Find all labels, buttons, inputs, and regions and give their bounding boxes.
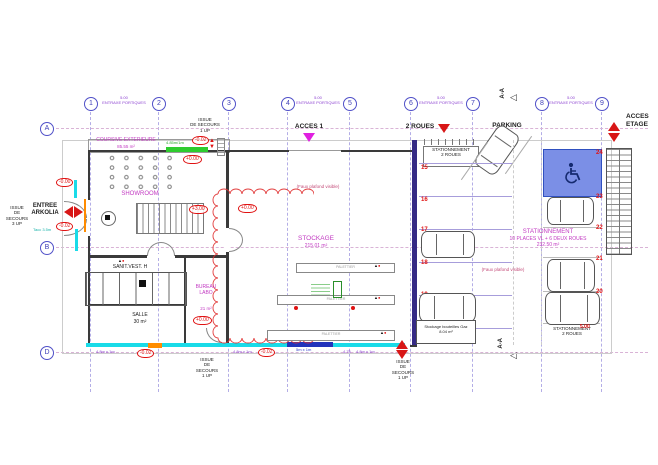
green-annotation-lines — [311, 284, 330, 295]
grid-column-bubble: 1 — [84, 97, 98, 111]
bottom-dimension: 4.75 — [343, 350, 351, 355]
walkway-dimension: 5m x 1m — [296, 348, 311, 353]
sprinkler-dot — [294, 306, 298, 310]
bike-rack-ticks — [424, 139, 480, 145]
rack-end-marker: ▲● — [374, 264, 380, 268]
entraxe-dimension-label: 5.00ENTRAXE PORTIQUES — [99, 96, 149, 106]
door-opening — [86, 200, 90, 236]
grid-column-bubble: 5 — [343, 97, 357, 111]
stall-number: 18 — [421, 260, 428, 267]
entrance-label-line2: ARKOLIA — [26, 210, 64, 217]
level-marker: -0.02 — [258, 348, 275, 357]
parking-main-name: STATIONNEMENT — [496, 229, 600, 236]
bike-bottom-line2: 2 ROUES — [540, 331, 604, 336]
orange-strip — [148, 343, 162, 348]
stall-number: 15 — [421, 165, 428, 172]
grid-column-bubble: 4 — [281, 97, 295, 111]
clearance-label: Tacc 3.5m — [33, 228, 51, 233]
bottom-dimension: 4.8m x 1m — [233, 350, 252, 355]
level-marker: +0.00 — [193, 316, 212, 325]
grid-column-bubble: 2 — [152, 97, 166, 111]
green-exit-bar — [166, 147, 208, 152]
coursive-area: 85.55 m² — [85, 144, 167, 149]
column-symbol-core — [105, 215, 110, 220]
showroom-label: SHOWROOM — [110, 191, 170, 198]
entraxe-dimension-label: 5.00ENTRAXE PORTIQUES — [546, 96, 596, 106]
two-wheels-label: 2 ROUES — [402, 123, 438, 131]
coursive-dim-label: 4.85m/1m — [166, 141, 184, 146]
sanit-label: SANIT.VEST. H — [100, 264, 160, 270]
rack-end-marker: ▲● — [374, 296, 380, 300]
floor-access-arrow-icon — [608, 122, 620, 131]
level-marker: +0.00 — [238, 204, 257, 213]
wheelchair-icon — [563, 162, 581, 184]
fire-exit-box — [217, 138, 225, 156]
cyan-strip — [86, 343, 148, 347]
sliding-door — [289, 150, 341, 151]
stall-number: 16 — [421, 197, 428, 204]
stockage-name: STOCKAGE — [288, 235, 344, 243]
stall-divider — [543, 257, 600, 258]
grid-column-bubble: 8 — [535, 97, 549, 111]
fire-exit-icon: ▲▼ — [209, 138, 215, 150]
grid-row-bubble: A — [40, 122, 54, 136]
grid-row-bubble: B — [40, 241, 54, 255]
entrance-arrow-icon — [74, 206, 83, 218]
level-marker: -0.02 — [56, 222, 73, 231]
grid-line-horizontal — [56, 128, 648, 129]
stall-number: 23 — [596, 194, 603, 201]
handicap-parking-space — [543, 149, 602, 197]
bureau-area: 21 m² — [186, 306, 226, 311]
parking-main-area: 232.50 m² — [496, 242, 600, 248]
entrance-arrow-icon — [64, 206, 73, 218]
rack-end-marker: ▲● — [380, 331, 386, 335]
stall-divider — [419, 196, 512, 197]
floor-plan: 1 2 3 4 5 6 7 8 9 A B D 5.00ENTRAXE PORT… — [0, 0, 658, 465]
stall-divider — [543, 227, 600, 228]
cyan-strip — [74, 180, 77, 198]
car-top-view — [547, 197, 594, 225]
bike-top-line2: 2 ROUES — [424, 152, 478, 157]
stall-fixture — [139, 280, 146, 287]
orange-door-leaf — [84, 199, 86, 232]
exterior-stairs — [606, 148, 632, 255]
two-wheels-arrow-icon — [438, 124, 450, 133]
bottom-dimension: 4.8m x 1m — [356, 350, 375, 355]
stall-number: 24 — [596, 150, 603, 157]
level-marker: -0.00 — [56, 178, 73, 187]
chairs-grid — [108, 154, 180, 193]
parking-main-label: STATIONNEMENT 10 PLACES VL + 6 DEUX ROUE… — [496, 229, 600, 249]
stall-number: 21 — [596, 256, 603, 263]
car-top-view — [545, 292, 600, 325]
parking-red-dimension: 5.00 — [580, 324, 590, 330]
storage-rack: PALETTIER — [267, 330, 395, 341]
grid-row-bubble: D — [40, 346, 54, 360]
exit-arrow-icon — [396, 350, 408, 359]
cyan-strip — [75, 229, 78, 251]
sanit-marker: ▲● — [118, 259, 124, 263]
level-marker: -0.02 — [192, 136, 209, 145]
floor-access-arrow-icon — [608, 133, 620, 142]
acces1-label: ACCES 1 — [287, 123, 331, 131]
grid-column-bubble: 9 — [595, 97, 609, 111]
van-top-view — [547, 259, 595, 292]
level-marker: -0.02 — [137, 349, 154, 358]
level-marker: +3.00 — [189, 205, 208, 214]
salle-name: SALLE — [120, 312, 160, 318]
sprinkler-dot — [351, 306, 355, 310]
stall-divider — [419, 262, 512, 263]
stall-divider — [419, 163, 512, 164]
green-cabinet — [333, 281, 342, 298]
grid-column-bubble: 3 — [222, 97, 236, 111]
exit-bottom-right-label: ISSUE DE SECOURS 1 UP — [384, 359, 422, 381]
grid-column-bubble: 7 — [466, 97, 480, 111]
stall-number: 22 — [596, 225, 603, 232]
bottom-dimension: 4.8m x 1m — [96, 350, 115, 355]
bike-parking-bottom-label: STATIONNEMENT 2 ROUES — [540, 326, 604, 337]
salle-area: 30 m² — [120, 319, 160, 325]
cyan-strip — [333, 343, 405, 347]
floor-access-label: ACCES ETAGE — [626, 113, 658, 129]
entraxe-dimension-label: 5.00ENTRAXE PORTIQUES — [293, 96, 343, 106]
section-marker-aa-top: A-A — [500, 88, 507, 99]
section-triangle-icon: ◁ — [510, 92, 517, 103]
stockage-ceiling-note: (Faux plafond visible) — [283, 184, 353, 189]
grid-column-bubble: 6 — [404, 97, 418, 111]
car-top-view — [419, 293, 476, 322]
bureau-name: BUREAU LABO — [186, 284, 226, 297]
van-top-view — [421, 231, 475, 258]
exit-bottom-left-label: ISSUE DE SECOURS 1 UP — [188, 357, 226, 379]
entraxe-dimension-label: 5.00ENTRAXE PORTIQUES — [416, 96, 466, 106]
exit-arrow-icon — [396, 340, 408, 349]
exit-top-label: ISSUE DE SECOURS 1 UP — [180, 117, 230, 133]
parking-ceiling-note: (Faux plafond visible) — [470, 267, 536, 272]
stockage-area: 215.01 m² — [288, 243, 344, 249]
property-wall — [412, 140, 417, 345]
level-marker: +0.00 — [183, 155, 202, 164]
coursive-name: COURSIVE EXTERIEURE — [85, 137, 167, 143]
toilet-stalls — [85, 272, 187, 306]
gas-storage-box: Stockage bouteilles Gaz 8.04 m² — [416, 320, 476, 344]
gas-storage-area: 8.04 m² — [417, 330, 475, 335]
acces1-arrow-icon — [303, 133, 315, 142]
